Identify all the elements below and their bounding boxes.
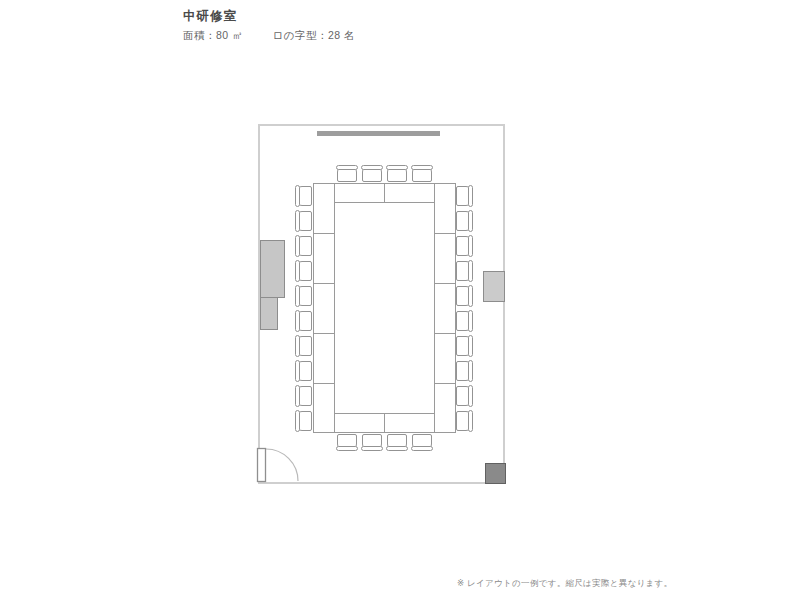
table-band-left	[313, 183, 335, 433]
chair	[296, 236, 312, 256]
chair	[456, 411, 472, 431]
chair	[456, 386, 472, 406]
chair	[456, 336, 472, 356]
chair	[296, 286, 312, 306]
whiteboard	[317, 131, 440, 136]
chair	[456, 211, 472, 231]
footnote: ※ レイアウトの一例です。縮尺は実際と異なります。	[457, 578, 672, 590]
chair	[362, 434, 382, 450]
chair	[456, 236, 472, 256]
chair	[296, 411, 312, 431]
chair	[337, 434, 357, 450]
chair	[412, 434, 432, 450]
table-divider	[384, 413, 385, 433]
chair	[337, 166, 357, 182]
chair	[362, 166, 382, 182]
table-divider	[434, 383, 456, 384]
chair	[456, 261, 472, 281]
chair	[296, 186, 312, 206]
floorplan-page: 中研修室 面積：80 ㎡ ロの字型：28 名 ※ レイアウトの一例です。縮尺は実…	[0, 0, 800, 600]
wall-cabinet-upper	[260, 240, 285, 298]
chair	[456, 361, 472, 381]
wall-panel-right	[483, 271, 505, 302]
chair	[296, 361, 312, 381]
chair	[456, 311, 472, 331]
floorplan	[0, 0, 800, 600]
chair	[296, 386, 312, 406]
door-icon	[255, 446, 307, 488]
chair	[387, 434, 407, 450]
chair	[296, 336, 312, 356]
wall-cabinet-lower	[260, 297, 278, 330]
table-divider	[434, 333, 456, 334]
chair	[456, 186, 472, 206]
table-divider	[384, 183, 385, 203]
chair	[296, 311, 312, 331]
table-band-right	[434, 183, 456, 433]
chair	[456, 286, 472, 306]
table-divider	[313, 333, 335, 334]
table-divider	[434, 283, 456, 284]
table-divider	[313, 383, 335, 384]
corner-equipment	[485, 463, 506, 484]
table-divider	[434, 233, 456, 234]
table-divider	[313, 283, 335, 284]
chair	[412, 166, 432, 182]
chair	[296, 211, 312, 231]
chair	[296, 261, 312, 281]
table-divider	[313, 233, 335, 234]
chair	[387, 166, 407, 182]
